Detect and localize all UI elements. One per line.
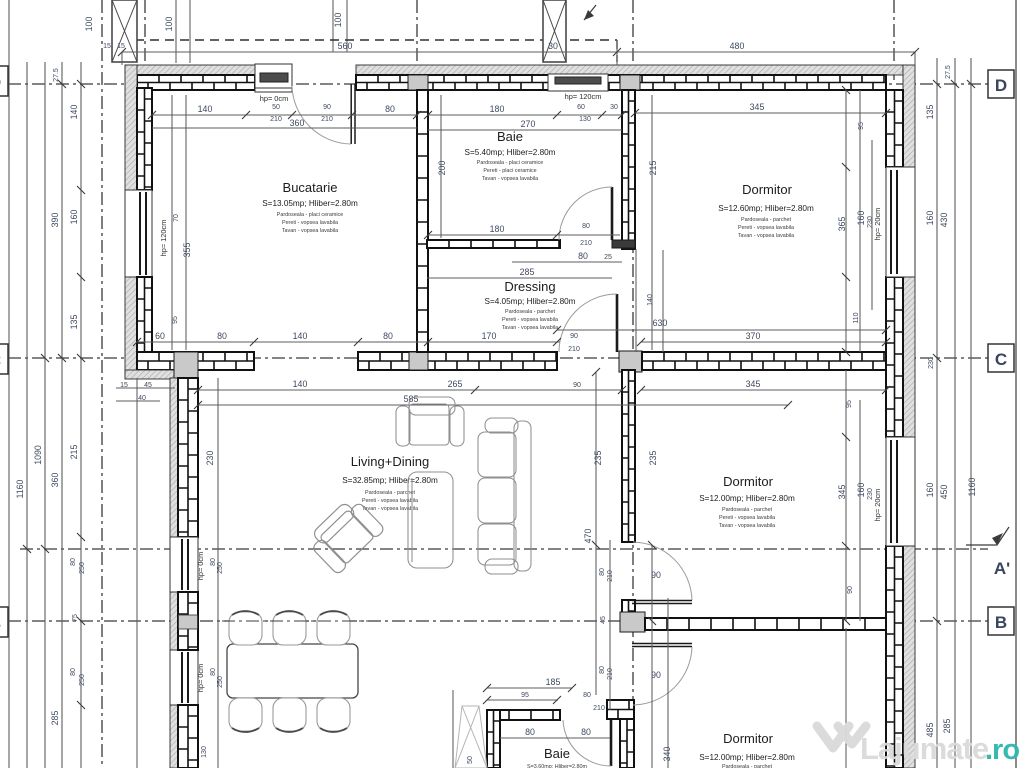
svg-text:Dormitor: Dormitor [723, 474, 774, 489]
svg-text:60: 60 [577, 104, 585, 111]
svg-text:S=32.85mp; Hliber=2.80m: S=32.85mp; Hliber=2.80m [342, 476, 438, 485]
svg-text:360: 360 [50, 473, 60, 488]
svg-text:Pereti - vopsea lavabila: Pereti - vopsea lavabila [738, 225, 794, 231]
svg-text:95: 95 [846, 400, 853, 408]
svg-text:80: 80 [70, 558, 77, 566]
svg-text:430: 430 [939, 213, 949, 228]
svg-text:S=3.60mp; Hliber=2.80m: S=3.60mp; Hliber=2.80m [527, 764, 587, 768]
svg-text:Pardoseala - parchet: Pardoseala - parchet [722, 764, 773, 768]
svg-text:355: 355 [182, 243, 192, 258]
svg-text:Tavan - vopsea lavabila: Tavan - vopsea lavabila [738, 233, 794, 239]
svg-text:160: 160 [925, 483, 935, 498]
svg-text:hp= 0cm: hp= 0cm [196, 552, 205, 581]
svg-text:A': A' [994, 559, 1010, 578]
svg-text:hp= 0cm: hp= 0cm [196, 664, 205, 693]
svg-text:250: 250 [217, 562, 224, 574]
svg-text:50: 50 [467, 756, 474, 764]
svg-text:Baie: Baie [497, 129, 523, 144]
svg-text:110: 110 [853, 312, 860, 323]
svg-text:C: C [0, 351, 1, 370]
svg-text:Tavan - vopsea lavabila: Tavan - vopsea lavabila [362, 506, 418, 512]
svg-text:D: D [0, 73, 1, 92]
svg-text:160: 160 [925, 211, 935, 226]
svg-text:210: 210 [593, 705, 605, 712]
svg-text:235: 235 [648, 451, 658, 466]
svg-text:80: 80 [385, 104, 395, 114]
svg-text:140: 140 [69, 105, 79, 120]
svg-text:210: 210 [580, 240, 592, 247]
svg-text:80: 80 [70, 668, 77, 676]
svg-text:80: 80 [210, 668, 217, 676]
svg-text:230: 230 [928, 357, 935, 369]
svg-text:Pereti - vopsea lavabila: Pereti - vopsea lavabila [282, 220, 338, 226]
svg-text:140: 140 [198, 104, 213, 114]
svg-text:Tavan - vopsea lavabila: Tavan - vopsea lavabila [482, 176, 538, 182]
svg-text:265: 265 [448, 379, 463, 389]
svg-text:D: D [995, 76, 1007, 95]
svg-text:95: 95 [521, 692, 529, 699]
svg-text:45: 45 [144, 382, 152, 389]
svg-text:140: 140 [293, 331, 308, 341]
svg-text:Dormitor: Dormitor [723, 731, 774, 746]
svg-text:80: 80 [525, 727, 535, 737]
svg-text:140: 140 [293, 379, 308, 389]
svg-text:250: 250 [79, 674, 86, 686]
svg-text:95: 95 [858, 122, 865, 130]
svg-text:170: 170 [482, 331, 497, 341]
svg-text:90: 90 [651, 570, 661, 580]
svg-text:80: 80 [210, 558, 217, 566]
svg-text:450: 450 [939, 485, 949, 500]
svg-text:S=13.05mp; Hliber=2.80m: S=13.05mp; Hliber=2.80m [262, 199, 358, 208]
svg-text:Pardoseala - parchet: Pardoseala - parchet [505, 309, 556, 315]
svg-text:15: 15 [103, 43, 111, 50]
svg-text:Pardoseala - placi ceramice: Pardoseala - placi ceramice [477, 160, 544, 166]
svg-text:345: 345 [837, 485, 847, 500]
svg-text:100: 100 [333, 13, 343, 28]
svg-text:Pereti - vopsea lavabila: Pereti - vopsea lavabila [362, 498, 418, 504]
svg-text:180: 180 [490, 224, 505, 234]
svg-text:15: 15 [120, 382, 128, 389]
svg-text:Pardoseala - placi ceramice: Pardoseala - placi ceramice [277, 212, 344, 218]
svg-text:390: 390 [50, 213, 60, 228]
svg-text:80: 80 [582, 223, 590, 230]
svg-text:80: 80 [599, 568, 606, 576]
svg-text:Pereti - placi ceramice: Pereti - placi ceramice [483, 168, 536, 174]
svg-text:40: 40 [138, 395, 146, 402]
svg-text:hp= 20cm: hp= 20cm [873, 489, 882, 522]
svg-text:Pereti - vopsea lavabila: Pereti - vopsea lavabila [502, 317, 558, 323]
svg-text:25: 25 [604, 254, 612, 261]
svg-text:60: 60 [155, 331, 165, 341]
svg-text:235: 235 [593, 451, 603, 466]
svg-text:B: B [0, 614, 1, 633]
svg-text:210: 210 [321, 116, 333, 123]
svg-text:130: 130 [579, 116, 591, 123]
svg-text:80: 80 [581, 727, 591, 737]
svg-text:Living+Dining: Living+Dining [351, 454, 429, 469]
svg-text:90: 90 [847, 586, 854, 594]
svg-text:Tavan - vopsea lavabila: Tavan - vopsea lavabila [502, 325, 558, 331]
svg-text:100: 100 [84, 17, 94, 32]
svg-text:Dormitor: Dormitor [742, 182, 793, 197]
svg-text:S=12.00mp; Hliber=2.80m: S=12.00mp; Hliber=2.80m [699, 494, 795, 503]
svg-text:45: 45 [600, 616, 607, 624]
svg-text:200: 200 [437, 161, 447, 176]
svg-text:285: 285 [50, 711, 60, 726]
svg-text:80: 80 [578, 251, 588, 261]
svg-text:560: 560 [338, 41, 353, 51]
svg-text:S=4.05mp; Hliber=2.80m: S=4.05mp; Hliber=2.80m [484, 297, 575, 306]
svg-text:215: 215 [648, 161, 658, 176]
svg-text:370: 370 [746, 331, 761, 341]
svg-text:180: 180 [490, 104, 505, 114]
svg-text:80: 80 [217, 331, 227, 341]
svg-text:Baie: Baie [544, 746, 570, 761]
svg-text:215: 215 [69, 445, 79, 460]
svg-text:30: 30 [548, 41, 558, 51]
svg-text:470: 470 [583, 529, 593, 544]
svg-text:360: 360 [290, 118, 305, 128]
svg-text:70: 70 [173, 214, 180, 222]
svg-text:50: 50 [272, 104, 280, 111]
svg-text:345: 345 [746, 379, 761, 389]
svg-text:95: 95 [172, 316, 179, 324]
svg-text:270: 270 [521, 119, 536, 129]
svg-text:90: 90 [323, 104, 331, 111]
svg-text:75: 75 [72, 614, 79, 622]
svg-text:80: 80 [383, 331, 393, 341]
svg-text:250: 250 [79, 562, 86, 574]
svg-text:hp= 120cm: hp= 120cm [565, 92, 602, 101]
svg-text:90: 90 [573, 382, 581, 389]
svg-text:hp= 0cm: hp= 0cm [260, 94, 289, 103]
svg-text:160: 160 [69, 210, 79, 225]
svg-text:S=5.40mp; Hliber=2.80m: S=5.40mp; Hliber=2.80m [464, 148, 555, 157]
svg-text:230: 230 [205, 451, 215, 466]
svg-text:480: 480 [730, 41, 745, 51]
svg-text:130: 130 [201, 746, 208, 758]
svg-text:Lajumate: Lajumate [860, 731, 989, 766]
svg-text:27.5: 27.5 [53, 68, 60, 82]
svg-text:100: 100 [164, 17, 174, 32]
svg-text:630: 630 [653, 318, 668, 328]
svg-text:135: 135 [925, 105, 935, 120]
svg-text:210: 210 [607, 570, 614, 582]
svg-text:C: C [995, 350, 1007, 369]
svg-text:210: 210 [607, 668, 614, 680]
svg-text:80: 80 [599, 666, 606, 674]
svg-text:Bucatarie: Bucatarie [283, 180, 338, 195]
svg-text:1160: 1160 [967, 477, 977, 496]
svg-text:250: 250 [217, 676, 224, 688]
svg-text:90: 90 [651, 670, 661, 680]
svg-text:1160: 1160 [15, 479, 25, 498]
svg-text:Tavan - vopsea lavabila: Tavan - vopsea lavabila [719, 523, 775, 529]
svg-text:90: 90 [570, 333, 578, 340]
svg-text:140: 140 [647, 294, 654, 306]
svg-text:135: 135 [69, 315, 79, 330]
svg-text:365: 365 [837, 217, 847, 232]
svg-text:210: 210 [568, 346, 580, 353]
svg-text:1090: 1090 [33, 445, 43, 465]
svg-text:210: 210 [270, 116, 282, 123]
svg-text:285: 285 [520, 267, 535, 277]
svg-text:345: 345 [750, 102, 765, 112]
svg-text:80: 80 [583, 692, 591, 699]
svg-text:S=12.60mp; Hliber=2.80m: S=12.60mp; Hliber=2.80m [718, 204, 814, 213]
svg-text:160: 160 [856, 211, 866, 226]
svg-text:hp= 20cm: hp= 20cm [873, 208, 882, 241]
svg-text:Tavan - vopsea lavabila: Tavan - vopsea lavabila [282, 228, 338, 234]
svg-text:B: B [995, 613, 1007, 632]
svg-text:340: 340 [662, 747, 672, 762]
svg-text:S=12.00mp; Hliber=2.80m: S=12.00mp; Hliber=2.80m [699, 753, 795, 762]
svg-text:hp= 120cm: hp= 120cm [159, 220, 168, 257]
svg-text:185: 185 [546, 677, 561, 687]
svg-text:30: 30 [610, 104, 618, 111]
svg-text:15: 15 [117, 43, 125, 50]
svg-text:.ro: .ro [985, 734, 1019, 766]
svg-text:Pereti - vopsea lavabila: Pereti - vopsea lavabila [719, 515, 775, 521]
svg-text:27.5: 27.5 [945, 65, 952, 79]
svg-text:Pardoseala - parchet: Pardoseala - parchet [722, 507, 773, 513]
svg-text:Dressing: Dressing [504, 279, 555, 294]
svg-text:Pardoseala - parchet: Pardoseala - parchet [741, 217, 792, 223]
svg-text:160: 160 [856, 483, 866, 498]
